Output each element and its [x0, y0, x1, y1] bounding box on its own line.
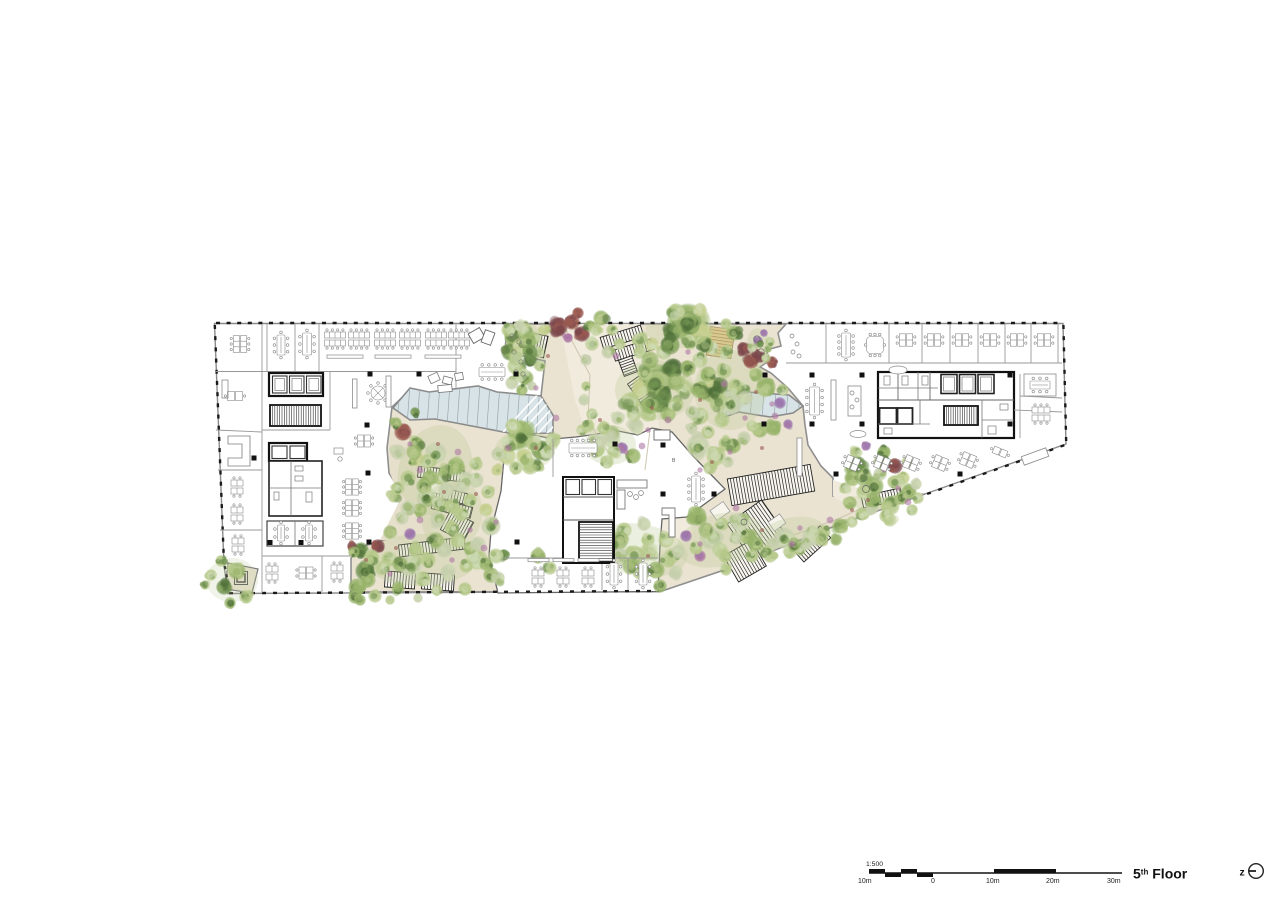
- svg-text:30m: 30m: [1107, 878, 1121, 885]
- svg-text:20m: 20m: [1046, 878, 1060, 885]
- svg-text:1:500: 1:500: [866, 861, 883, 868]
- svg-text:z: z: [1240, 867, 1245, 879]
- svg-text:0: 0: [931, 878, 935, 885]
- svg-text:10m: 10m: [986, 878, 1000, 885]
- svg-text:10m: 10m: [858, 878, 872, 885]
